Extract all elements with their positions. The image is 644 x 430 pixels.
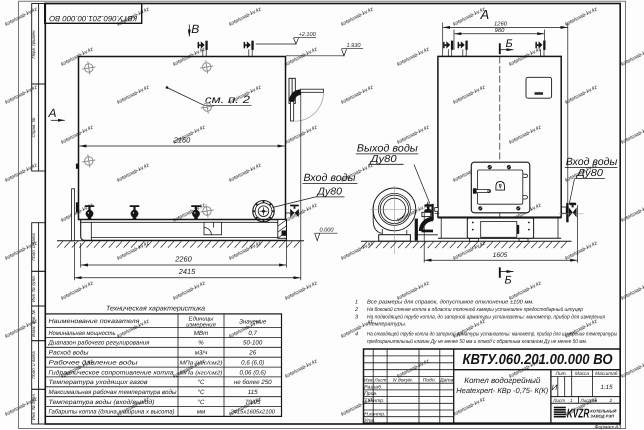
svg-text:Изм.: Изм. bbox=[364, 378, 374, 383]
svg-text:На боковой стенке котла в обла: На боковой стенке котла в области топочн… bbox=[367, 306, 583, 313]
svg-text:Подп.: Подп. bbox=[423, 378, 436, 384]
svg-text:Ду80: Ду80 bbox=[369, 154, 397, 165]
svg-text:1:15: 1:15 bbox=[600, 384, 613, 391]
svg-text:Габариты котла (длина х ширина: Габариты котла (длина х ширина х высота) bbox=[49, 409, 175, 416]
svg-text:Вход воды: Вход воды bbox=[304, 172, 356, 184]
svg-text:0.000: 0.000 bbox=[320, 228, 335, 234]
svg-text:2415х1605х2100: 2415х1605х2100 bbox=[229, 409, 275, 416]
svg-text:1.930: 1.930 bbox=[347, 43, 362, 49]
svg-text:Температура уходящих газов: Температура уходящих газов bbox=[49, 379, 149, 386]
svg-text:На подводящей трубе котла, д: На подводящей трубе котла, до запорной а… bbox=[367, 314, 605, 321]
svg-text:4: 4 bbox=[355, 332, 358, 338]
svg-text:115: 115 bbox=[248, 389, 258, 396]
svg-text:2260: 2260 bbox=[174, 254, 192, 263]
svg-text:1605: 1605 bbox=[493, 252, 508, 259]
svg-text:Листов: Листов bbox=[580, 398, 598, 403]
svg-text:Котел водогрейный: Котел водогрейный bbox=[464, 376, 541, 385]
svg-text:КВТУ.060.201.00.000 ВО: КВТУ.060.201.00.000 ВО bbox=[463, 352, 614, 368]
svg-text:МПа (кгс/см2): МПа (кгс/см2) bbox=[180, 369, 223, 376]
svg-text:ЗАВОД РЭП: ЗАВОД РЭП bbox=[590, 413, 614, 418]
svg-text:не более 250: не более 250 bbox=[234, 379, 272, 386]
svg-text:Heatexpert- КВр -0,75- К(К): Heatexpert- КВр -0,75- К(К) bbox=[456, 386, 548, 395]
svg-text:Масса: Масса bbox=[575, 371, 590, 377]
svg-text:°С: °С bbox=[198, 379, 205, 386]
svg-text:Диапазон рабочего регулировани: Диапазон рабочего регулирования bbox=[48, 340, 151, 347]
svg-text:0,6 (6,0): 0,6 (6,0) bbox=[241, 359, 264, 366]
svg-text:Выход воды: Выход воды bbox=[357, 143, 418, 155]
svg-text:KVZR: KVZR bbox=[567, 405, 590, 420]
svg-text:Взам. инв. №: Взам. инв. № bbox=[31, 309, 36, 336]
svg-text:см. п. 2: см. п. 2 bbox=[205, 94, 250, 106]
svg-text:А: А bbox=[480, 7, 490, 22]
svg-text:Подп. и дата: Подп. и дата bbox=[31, 351, 36, 379]
svg-text:Разраб.: Разраб. bbox=[364, 385, 382, 391]
svg-text:И: И bbox=[552, 383, 558, 392]
svg-text:мм: мм bbox=[197, 409, 206, 416]
svg-text:Н.контр.: Н.контр. bbox=[364, 411, 385, 417]
svg-text:м3/ч: м3/ч bbox=[195, 350, 208, 357]
svg-text:предохранительный клапан Ду н: предохранительный клапан Ду не менее 50 … bbox=[367, 338, 587, 345]
svg-text:Масштаб: Масштаб bbox=[595, 371, 618, 377]
svg-text:Б: Б bbox=[506, 38, 513, 50]
svg-text:50-100: 50-100 bbox=[243, 340, 263, 347]
svg-text:Формат: Формат bbox=[595, 424, 615, 430]
svg-text:Пров.: Пров. bbox=[364, 391, 377, 397]
svg-text:Расход воды: Расход воды bbox=[49, 350, 89, 357]
svg-text:Значение: Значение bbox=[239, 318, 267, 325]
svg-text:0,06 (0,6): 0,06 (0,6) bbox=[239, 369, 265, 376]
svg-text:Наименование показателя: Наименование показателя bbox=[49, 318, 141, 325]
svg-text:Номинальная мощность: Номинальная мощность bbox=[49, 330, 116, 337]
svg-text:Б: Б bbox=[505, 275, 512, 287]
svg-text:Инв. № дубл.: Инв. № дубл. bbox=[31, 275, 36, 302]
svg-text:2160: 2160 bbox=[173, 136, 191, 145]
svg-text:Ду80: Ду80 bbox=[576, 168, 604, 179]
svg-text:Техническая характеристика: Техническая характеристика bbox=[106, 306, 205, 313]
svg-text:0,7: 0,7 bbox=[248, 330, 257, 337]
svg-text:%: % bbox=[198, 340, 204, 347]
svg-text:1260: 1260 bbox=[494, 20, 508, 27]
svg-text:На отводящей трубе котла до за: На отводящей трубе котла до запорной арм… bbox=[367, 331, 617, 338]
svg-text:В: В bbox=[191, 22, 199, 36]
svg-text:Справ. №: Справ. № bbox=[31, 117, 36, 137]
svg-text:°С: °С bbox=[198, 389, 205, 396]
svg-text:Температура воды (вход/выход): Температура воды (вход/выход) bbox=[49, 399, 155, 406]
svg-text:МПа (кгс/см2): МПа (кгс/см2) bbox=[180, 359, 223, 366]
svg-text:Т.контр.: Т.контр. bbox=[364, 398, 384, 404]
svg-text:Инв. № подл.: Инв. № подл. bbox=[31, 393, 36, 420]
svg-text:Все размеры для справок, допус: Все размеры для справок, допустимое откл… bbox=[367, 300, 534, 306]
svg-text:Дата: Дата bbox=[439, 378, 453, 384]
svg-text:70/95: 70/95 bbox=[245, 399, 261, 406]
svg-text:А3: А3 bbox=[614, 424, 621, 430]
svg-text:А: А bbox=[48, 106, 57, 120]
svg-text:Перв. примен.: Перв. примен. bbox=[31, 29, 36, 58]
svg-text:Утв.: Утв. bbox=[364, 418, 375, 424]
svg-text:2415: 2415 bbox=[178, 267, 196, 276]
svg-text:Вход воды: Вход воды bbox=[566, 156, 618, 168]
svg-text:Рабочее давление воды: Рабочее давление воды bbox=[49, 359, 139, 366]
svg-text:Ду80: Ду80 bbox=[316, 187, 342, 198]
svg-text:1: 1 bbox=[570, 398, 573, 403]
svg-text:измерения: измерения bbox=[186, 323, 216, 329]
svg-text:°С: °С bbox=[198, 399, 205, 406]
svg-text:КВТУ.060.201.00.000 ВО: КВТУ.060.201.00.000 ВО bbox=[49, 14, 137, 23]
svg-text:Максимальная рабочая температу: Максимальная рабочая температура воды bbox=[49, 389, 177, 396]
svg-text:Лит.: Лит. bbox=[555, 371, 567, 377]
svg-text:Лист: Лист bbox=[374, 378, 387, 383]
svg-text:26: 26 bbox=[248, 350, 256, 357]
svg-text:МВт: МВт bbox=[194, 330, 208, 337]
svg-text:960: 960 bbox=[495, 27, 505, 34]
svg-text:Гидравлическое сопротивление к: Гидравлическое сопротивление котла bbox=[49, 369, 175, 376]
svg-text:2: 2 bbox=[354, 307, 358, 313]
svg-text:N докум.: N докум. bbox=[393, 378, 413, 384]
svg-text:+2.100: +2.100 bbox=[299, 32, 317, 38]
svg-text:2: 2 bbox=[609, 398, 613, 403]
svg-text:Подп. и дата: Подп. и дата bbox=[31, 233, 36, 261]
svg-text:1: 1 bbox=[355, 300, 358, 306]
svg-text:Лист: Лист bbox=[552, 398, 565, 403]
svg-text:Единицы: Единицы bbox=[189, 316, 214, 323]
svg-text:температуры.: температуры. bbox=[367, 322, 406, 328]
